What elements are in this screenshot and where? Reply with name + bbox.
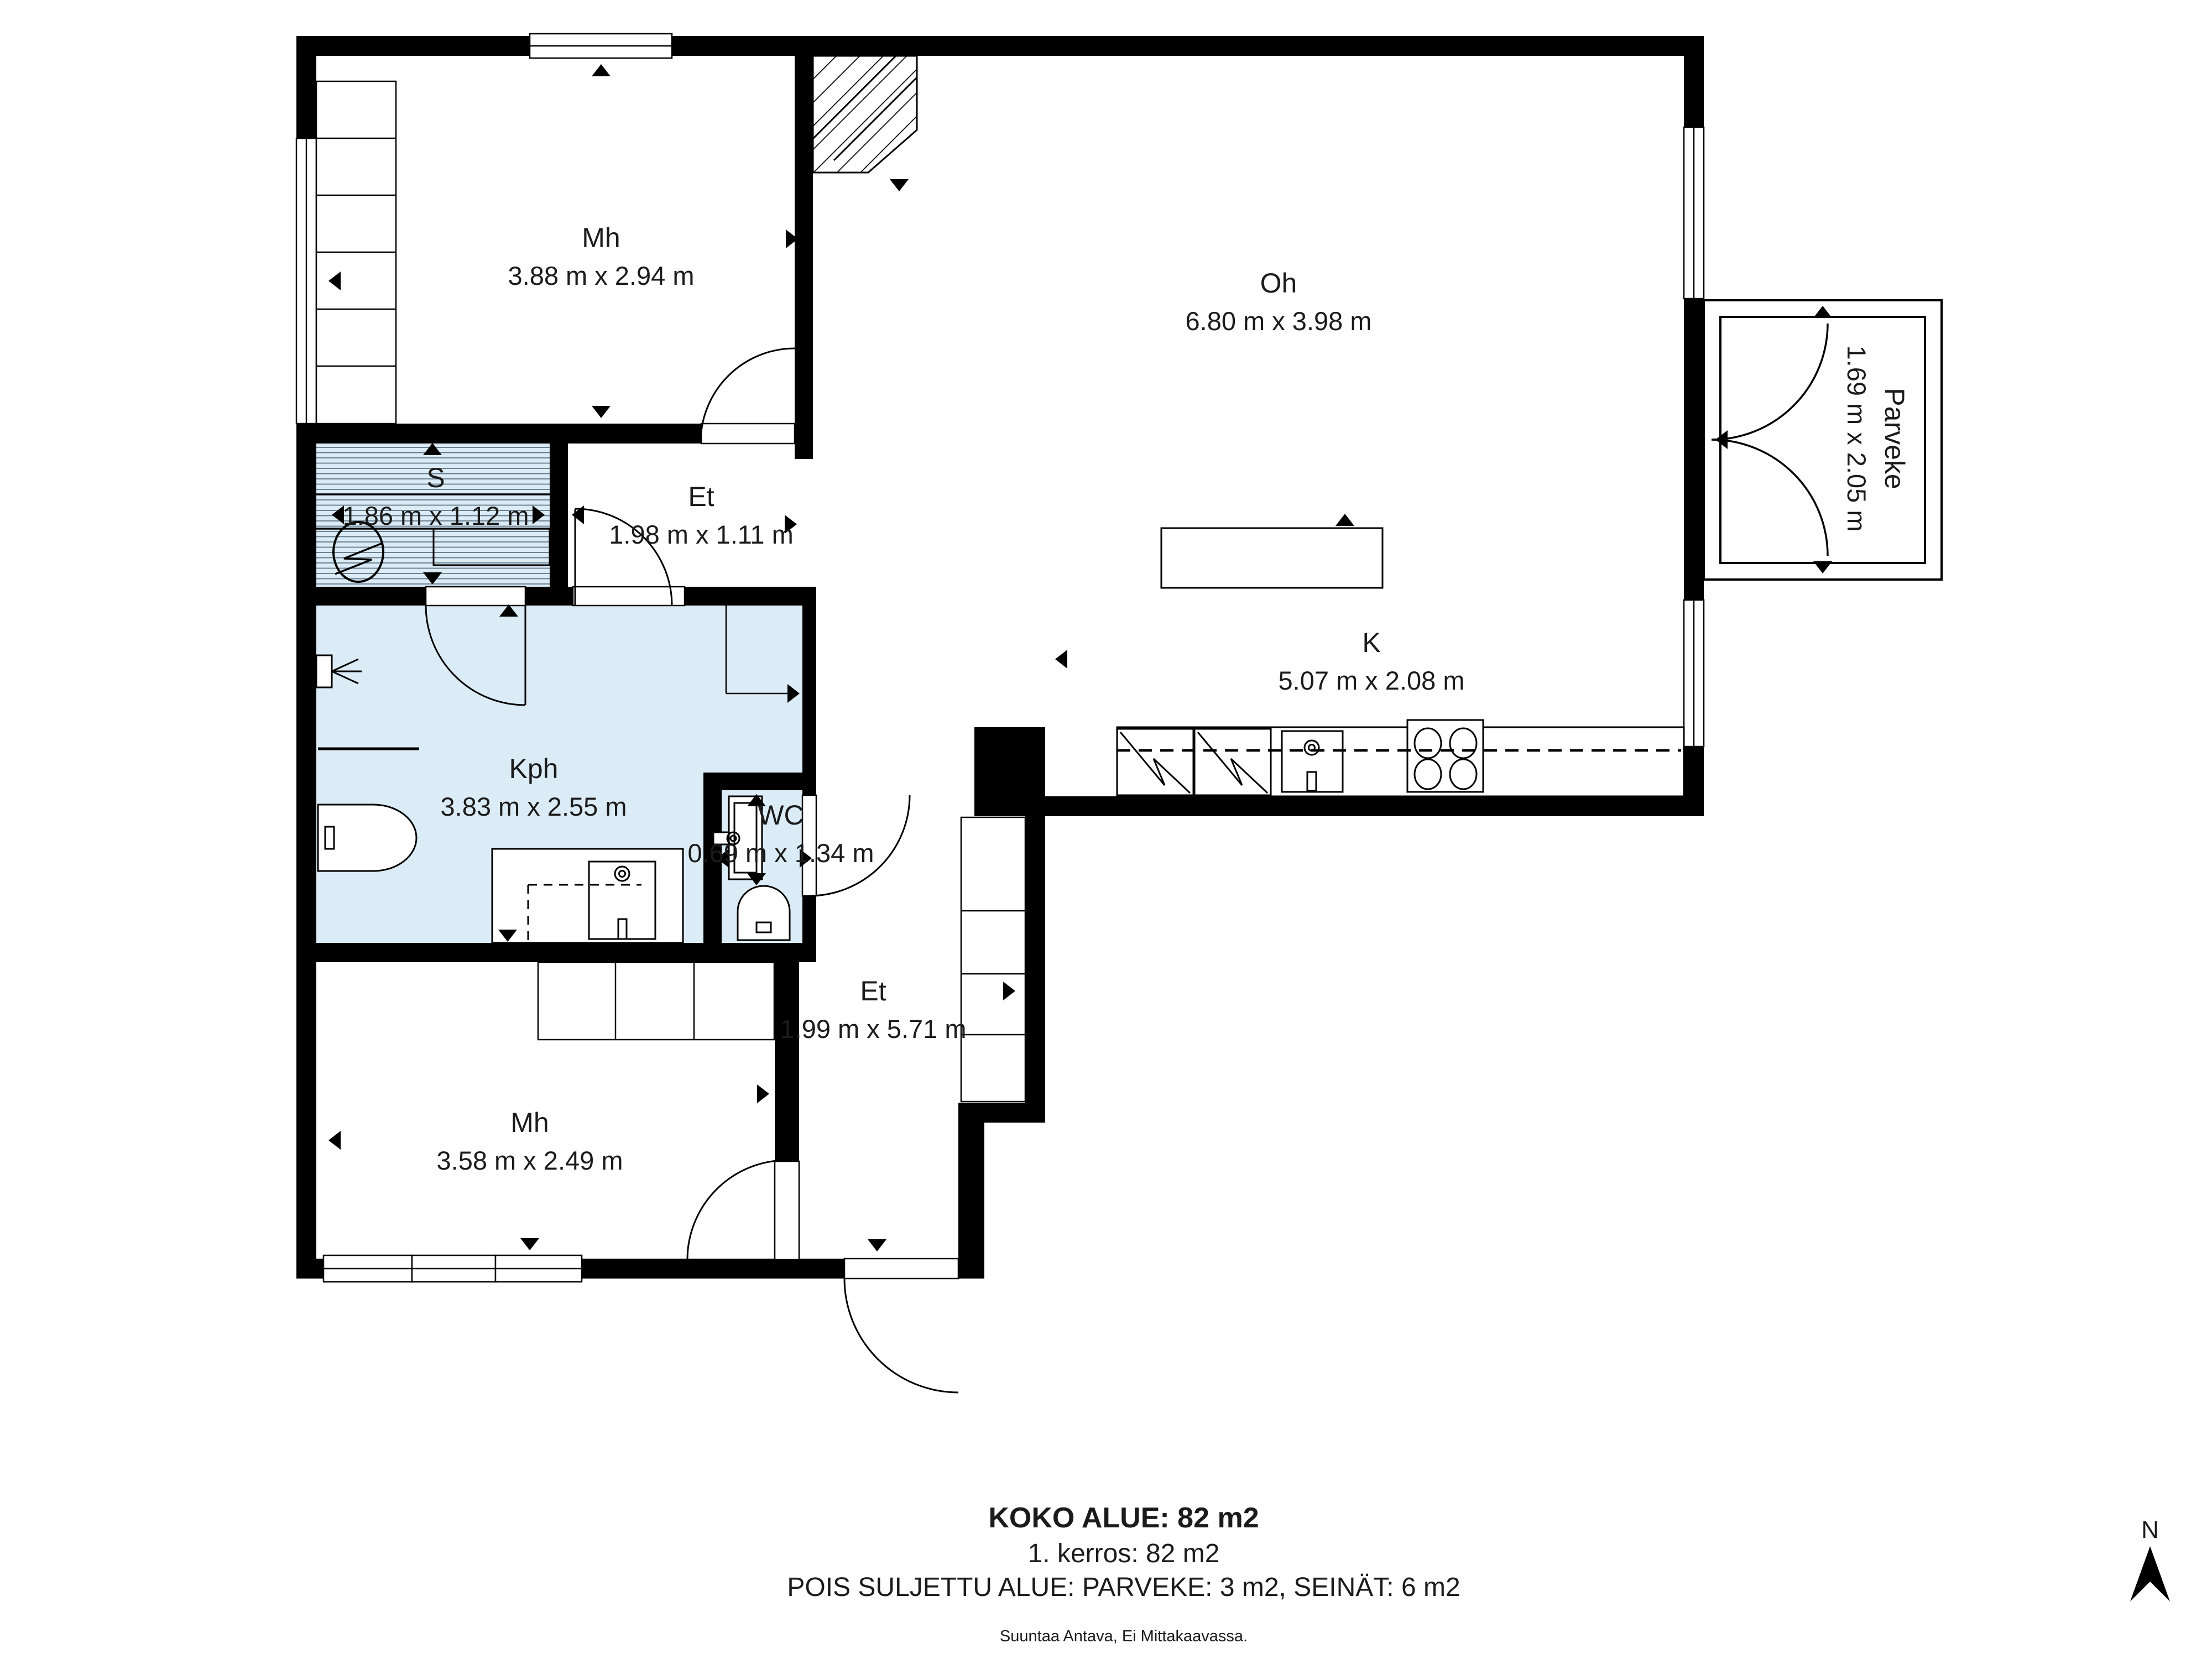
wardrobe-hall xyxy=(961,817,1025,1102)
mh2-door-arc xyxy=(687,1160,787,1260)
disclaimer-line: Suuntaa Antava, Ei Mittakaavassa. xyxy=(787,1626,1460,1647)
balcony-outer-wall xyxy=(1704,300,1942,580)
window-mh1-left xyxy=(296,138,316,424)
floorplan-page: Mh 3.88 m x 2.94 m Oh 6.80 m x 3.98 m S … xyxy=(0,0,2212,1659)
sauna-door-opening xyxy=(426,587,525,606)
wall-sauna-right xyxy=(550,444,568,587)
stove-icon xyxy=(1407,720,1483,792)
north-compass: N xyxy=(2128,1516,2172,1609)
north-label: N xyxy=(2128,1516,2172,1544)
total-area-line: KOKO ALUE: 82 m2 xyxy=(787,1500,1460,1537)
kitchen-island xyxy=(1161,528,1383,588)
wardrobe-mh1 xyxy=(316,81,396,424)
entry-door-opening xyxy=(844,1259,958,1279)
wall-kitchen-bottom xyxy=(1025,796,1704,816)
wall-sauna-kph xyxy=(316,587,816,606)
mh1-door-opening xyxy=(701,424,795,444)
wall-wc-top xyxy=(703,773,816,790)
toilet-icon xyxy=(318,805,416,871)
wall-mh1-right xyxy=(795,56,813,459)
freezer-icon xyxy=(1194,729,1271,795)
fridge-icon xyxy=(1117,729,1193,795)
washbasin-cabinet-icon xyxy=(492,849,683,943)
north-arrow-icon xyxy=(2128,1545,2172,1606)
kph-door-opening xyxy=(573,587,685,606)
sink-icon xyxy=(1282,731,1343,792)
wall-kph-right xyxy=(802,606,816,795)
floorplan-drawing xyxy=(0,0,2212,1659)
wall-wc-right-lower xyxy=(802,896,816,943)
entry-door-arc xyxy=(844,1279,958,1392)
balcony-door-arc-bottom xyxy=(1712,440,1828,556)
wc-door-opening xyxy=(802,795,816,896)
window-oh-right xyxy=(1684,127,1704,299)
chimney-block xyxy=(813,56,917,173)
mh2-door-opening xyxy=(775,1161,799,1260)
window-k-right xyxy=(1684,600,1704,747)
wall-hall-right xyxy=(1025,796,1045,1123)
wall-top xyxy=(296,36,1704,56)
wc-door-arc xyxy=(809,795,910,896)
area-summary: KOKO ALUE: 82 m2 1. kerros: 82 m2 POIS S… xyxy=(787,1500,1460,1647)
wc-toilet-icon xyxy=(738,886,790,940)
wall-hall-step xyxy=(958,1103,1045,1123)
wall-kph-bottom xyxy=(296,943,816,962)
excluded-area-line: POIS SULJETTU ALUE: PARVEKE: 3 m2, SEINÄ… xyxy=(787,1571,1460,1604)
kitchen xyxy=(1117,528,1684,796)
window-mh2-bottom xyxy=(324,1255,582,1282)
window-mh1-top xyxy=(530,34,672,58)
wall-kph-wc-left xyxy=(703,790,722,943)
wall-hall-step-down xyxy=(958,1123,984,1279)
wardrobe-mh2 xyxy=(538,962,774,1040)
floor-area-line: 1. kerros: 82 m2 xyxy=(787,1537,1460,1571)
balcony-door-arc-top xyxy=(1712,324,1828,440)
